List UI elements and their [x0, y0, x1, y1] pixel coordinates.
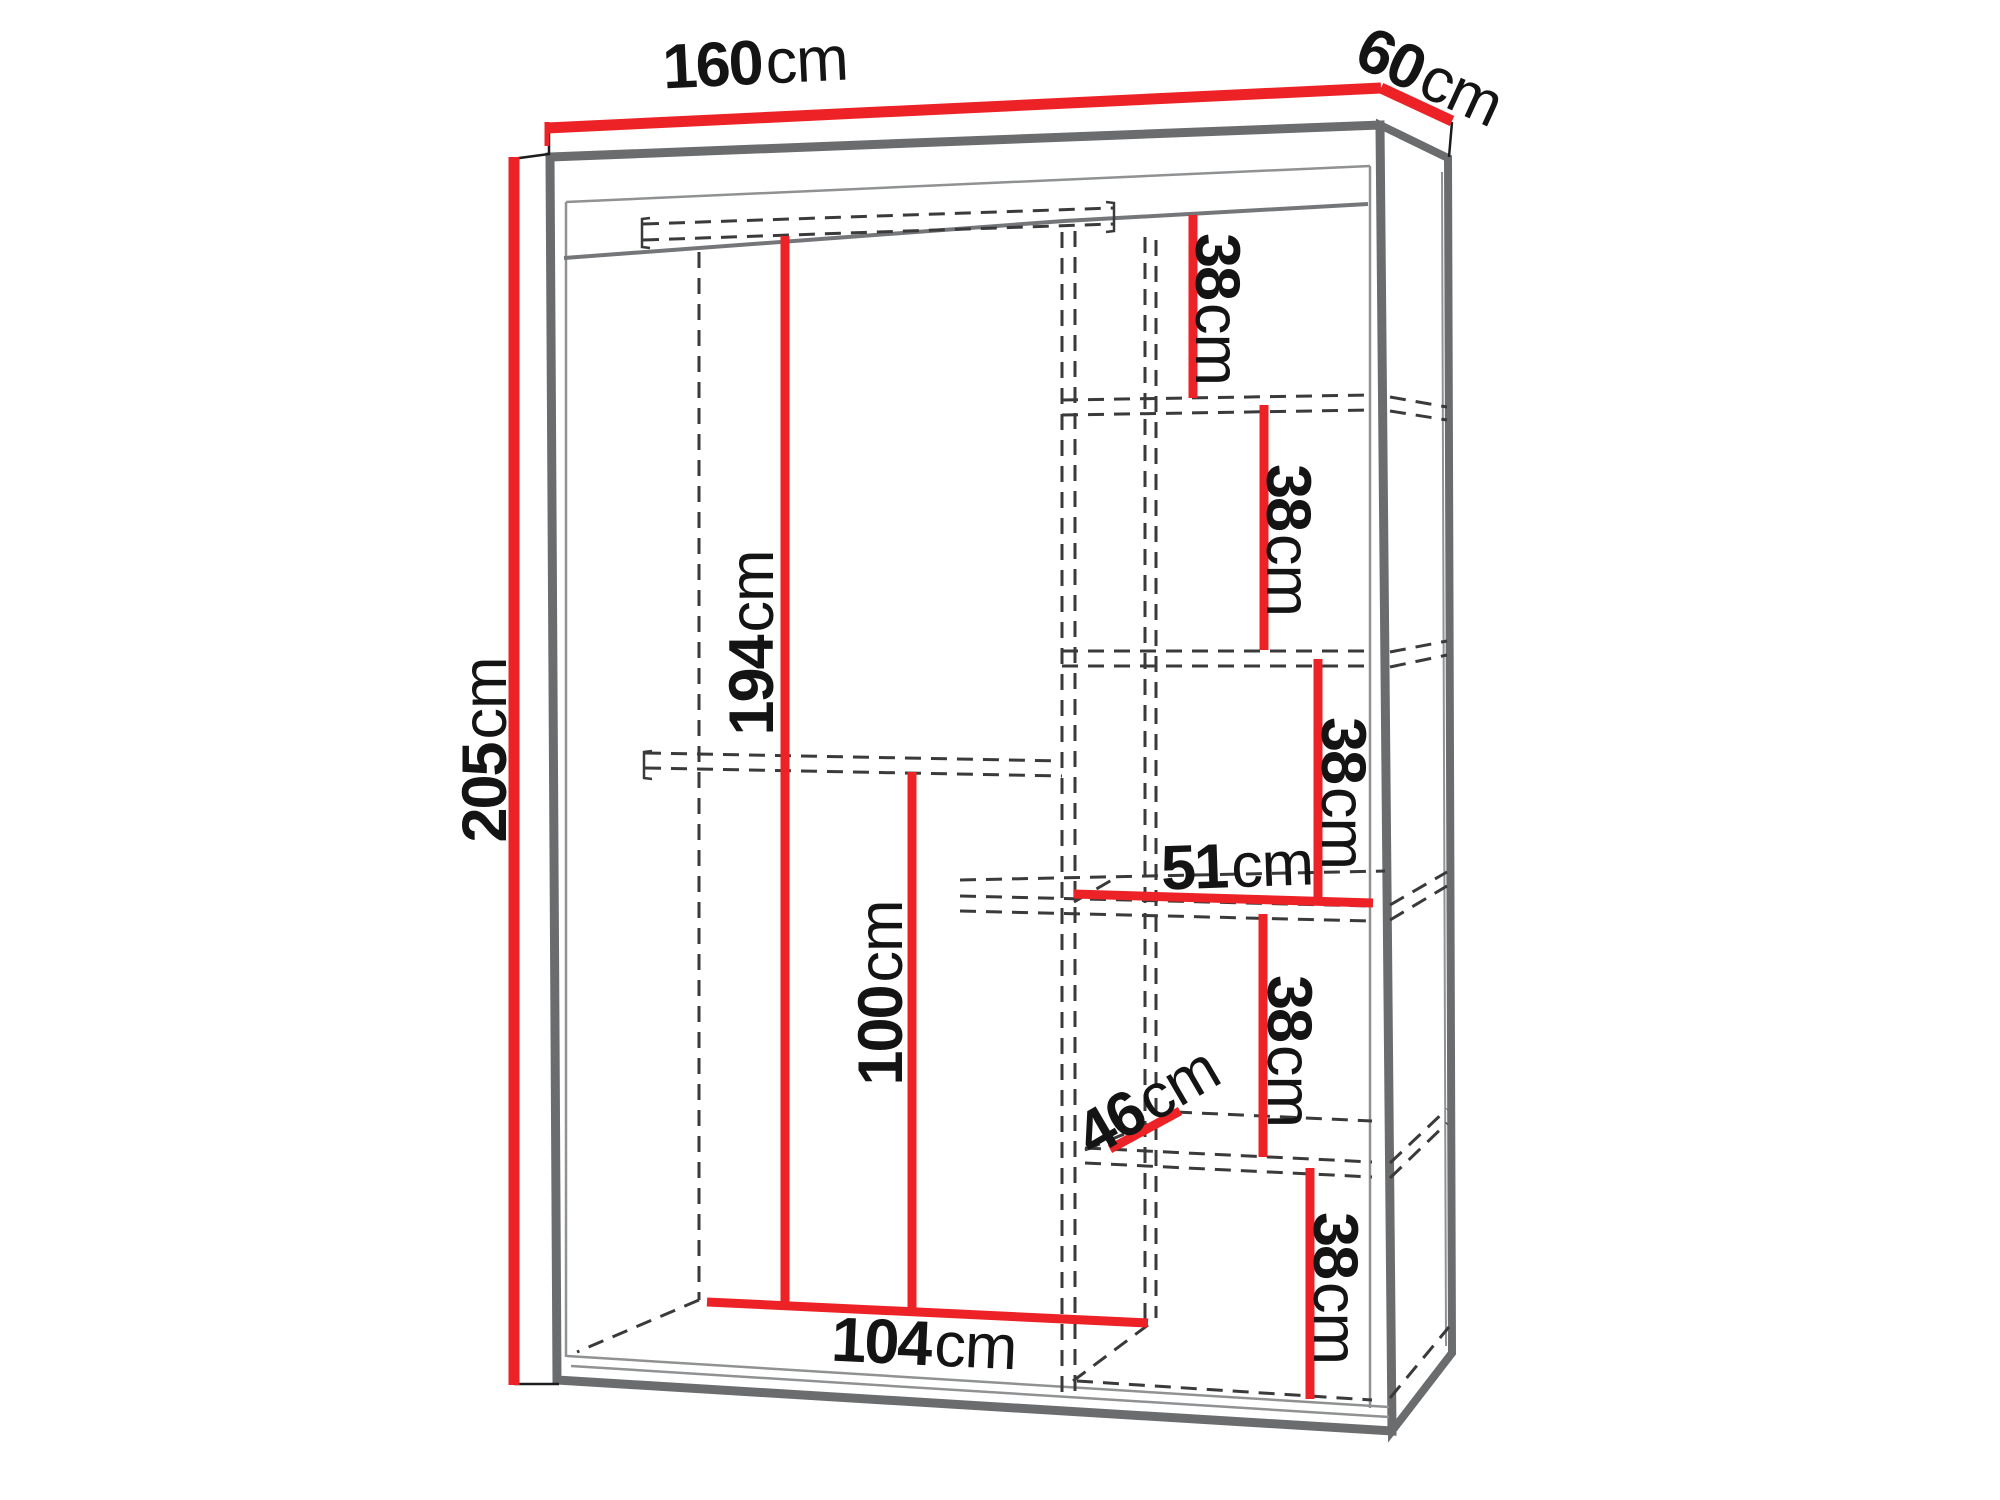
shelf-spacing-5-unit: cm [1300, 1282, 1370, 1364]
lower-section-height-label: 100cm [846, 900, 916, 1085]
shelf-spacing-2-label: 38cm [1253, 464, 1323, 616]
shelf-spacing-4-label: 38cm [1254, 975, 1324, 1127]
wardrobe-front-frame [550, 125, 1392, 1431]
shelf-spacing-3-label: 38cm [1308, 717, 1378, 869]
shelf-spacing-3-unit: cm [1308, 787, 1378, 869]
total-width-value: 160 [661, 28, 763, 103]
shelf-width-label: 51cm [1160, 828, 1314, 903]
interior-width-label: 104cm [830, 1305, 1018, 1384]
shelf-spacing-4-unit: cm [1254, 1045, 1324, 1127]
interior-width-unit: cm [933, 1310, 1018, 1384]
interior-height-label: 194cm [717, 550, 787, 735]
shelf-spacing-5-value: 38 [1300, 1212, 1370, 1279]
diagram-canvas: 160cm 60cm 205cm 194cm 100cm 104cm 51cm … [0, 0, 2000, 1500]
total-width-unit: cm [764, 24, 849, 98]
shelf-spacing-1-unit: cm [1182, 303, 1252, 385]
shelf-spacing-1-label: 38cm [1182, 233, 1252, 385]
total-height-unit: cm [450, 657, 520, 739]
shelf-spacing-5-label: 38cm [1300, 1212, 1370, 1364]
lower-section-height-value: 100 [846, 986, 916, 1085]
shelf-width-unit: cm [1230, 828, 1314, 901]
total-height-label: 205cm [450, 657, 520, 842]
shelf-spacing-2-unit: cm [1253, 534, 1323, 616]
lower-section-height-unit: cm [846, 900, 916, 982]
interior-height-value: 194 [717, 634, 787, 735]
total-width-label: 160cm [661, 24, 849, 103]
total-height-value: 205 [450, 742, 520, 842]
wardrobe-dimension-diagram: 160cm 60cm 205cm 194cm 100cm 104cm 51cm … [0, 0, 2000, 1500]
shelf-width-value: 51 [1160, 831, 1229, 903]
interior-height-unit: cm [717, 550, 787, 632]
shelf-spacing-3-value: 38 [1308, 717, 1378, 784]
shelf-spacing-2-value: 38 [1253, 464, 1323, 531]
interior-width-value: 104 [830, 1305, 934, 1380]
shelf-spacing-1-value: 38 [1182, 233, 1252, 300]
shelf-spacing-4-value: 38 [1254, 975, 1324, 1042]
